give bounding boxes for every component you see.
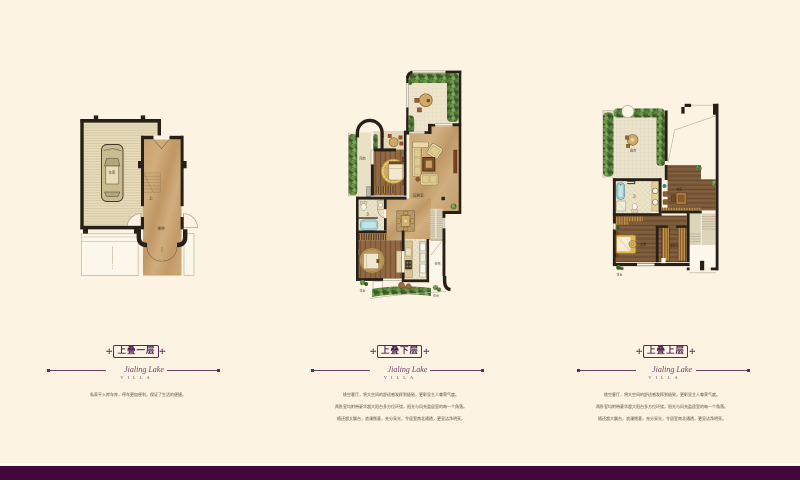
svg-text:主卧: 主卧 [640,242,647,247]
svg-text:起居室: 起居室 [413,193,424,198]
svg-text:花台: 花台 [617,272,623,277]
svg-text:上: 上 [149,195,153,201]
svg-text:楼梯: 楼梯 [158,226,166,231]
svg-text:阳台: 阳台 [360,156,366,161]
svg-text:衣帽间: 衣帽间 [670,243,679,247]
svg-text:花台: 花台 [433,293,439,298]
svg-text:露台: 露台 [630,148,636,153]
svg-text:花台: 花台 [360,288,366,293]
svg-text:书房: 书房 [676,187,682,192]
svg-text:车库: 车库 [109,170,116,175]
svg-text:楼梯: 楼梯 [435,261,441,266]
